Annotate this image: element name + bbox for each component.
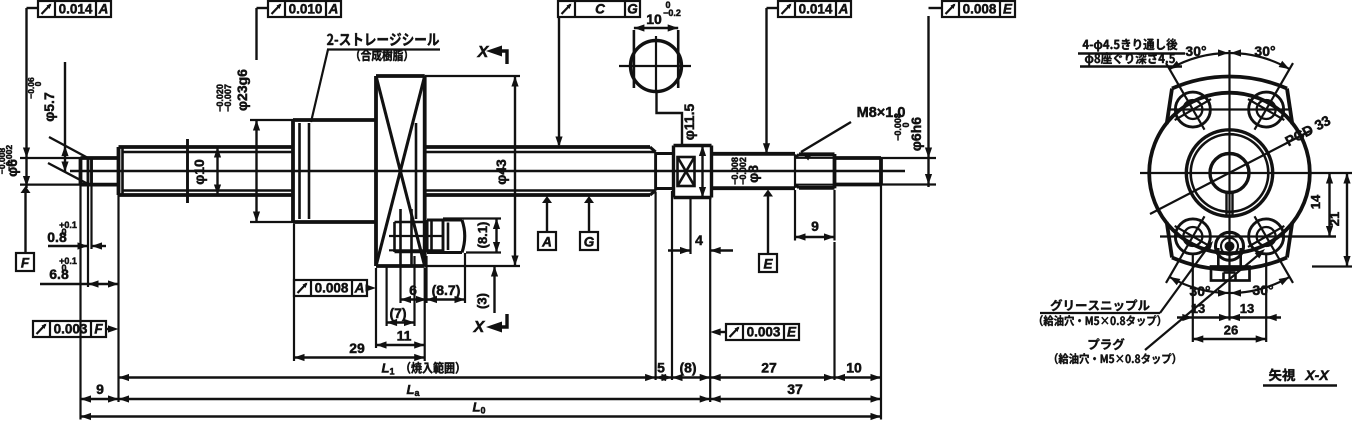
svg-text:E: E: [763, 257, 773, 272]
svg-text:4: 4: [695, 232, 703, 248]
svg-text:A: A: [838, 2, 849, 17]
svg-text:−0.06: −0.06: [26, 77, 36, 99]
svg-text:−0.008: −0.008: [730, 157, 740, 185]
svg-text:E: E: [787, 325, 797, 340]
svg-text:(8.7): (8.7): [432, 282, 461, 298]
svg-text:29: 29: [349, 340, 365, 356]
svg-text:(8): (8): [679, 360, 696, 376]
svg-text:13: 13: [1240, 301, 1254, 316]
svg-text:0.003: 0.003: [54, 322, 88, 337]
svg-text:C: C: [595, 2, 605, 17]
svg-text:26: 26: [1224, 323, 1238, 338]
svg-text:(7): (7): [389, 305, 406, 321]
svg-text:φ43: φ43: [493, 159, 509, 185]
svg-text:X-X: X-X: [1304, 367, 1330, 383]
svg-text:0.008: 0.008: [963, 2, 997, 17]
svg-text:27: 27: [761, 360, 777, 376]
svg-text:5: 5: [657, 360, 665, 376]
svg-text:X: X: [477, 44, 490, 61]
svg-text:A: A: [354, 281, 365, 296]
svg-text:37: 37: [787, 381, 803, 397]
svg-text:0: 0: [61, 227, 66, 237]
svg-text:30°: 30°: [1252, 282, 1273, 298]
svg-text:9: 9: [811, 218, 819, 234]
svg-text:(8.1): (8.1): [475, 222, 490, 249]
svg-text:−0.020: −0.020: [215, 84, 225, 112]
svg-text:0.008: 0.008: [315, 281, 349, 296]
svg-text:φ11.5: φ11.5: [681, 104, 697, 141]
svg-text:A: A: [98, 2, 109, 17]
svg-text:0.010: 0.010: [289, 2, 323, 17]
svg-text:F: F: [21, 256, 30, 271]
svg-text:10: 10: [846, 360, 862, 376]
svg-text:0: 0: [61, 263, 66, 273]
svg-text:φ10: φ10: [191, 159, 207, 185]
svg-text:21: 21: [1327, 212, 1342, 226]
svg-text:−0.008: −0.008: [0, 148, 7, 175]
svg-text:30°: 30°: [1254, 43, 1275, 59]
svg-text:A: A: [328, 2, 339, 17]
svg-text:φ23g6: φ23g6: [234, 69, 250, 111]
svg-text:G: G: [584, 235, 595, 250]
svg-text:X: X: [473, 319, 486, 336]
svg-text:0.014: 0.014: [59, 2, 93, 17]
svg-text:F: F: [94, 322, 103, 337]
svg-text:A: A: [541, 235, 552, 250]
svg-text:30°: 30°: [1185, 43, 1206, 59]
svg-text:−0.2: −0.2: [663, 8, 681, 18]
svg-text:φ5.7: φ5.7: [41, 92, 57, 122]
svg-text:6: 6: [409, 282, 417, 298]
svg-text:10: 10: [646, 11, 662, 27]
svg-text:E: E: [1003, 2, 1013, 17]
svg-text:0.014: 0.014: [799, 2, 833, 17]
svg-text:9: 9: [96, 381, 104, 397]
svg-text:11: 11: [397, 328, 412, 344]
svg-text:G: G: [627, 2, 638, 17]
svg-text:0.003: 0.003: [747, 325, 781, 340]
svg-text:(3): (3): [475, 293, 490, 309]
svg-text:−0.008: −0.008: [893, 113, 903, 141]
svg-text:φ6h6: φ6h6: [908, 117, 924, 151]
svg-text:14: 14: [1308, 194, 1323, 209]
